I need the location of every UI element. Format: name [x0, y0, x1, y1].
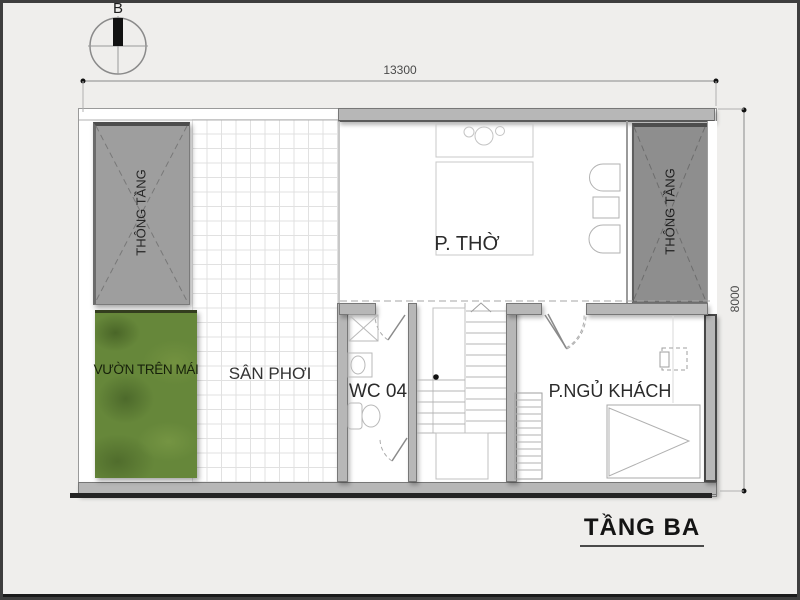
wall-wc-top [339, 303, 376, 315]
bottom-wall-shadow [70, 493, 712, 498]
wall-stair-right [506, 303, 517, 482]
sheet-title: TẦNG BA [557, 514, 727, 547]
north-label: B [108, 0, 128, 17]
wall-bedroom-top-right [586, 303, 708, 315]
void-right-label: THÔNG TẦNG [663, 152, 678, 272]
floor-plan-sheet: B 13300 8000 THÔNG TẦNG THÔNG TẦNG VƯỜN … [0, 0, 800, 600]
top-wall [338, 108, 715, 122]
guest-bedroom-label: P.NGỦ KHÁCH [530, 381, 690, 402]
drying-yard-label: SÂN PHƠI [200, 364, 340, 384]
void-left-label: THÔNG TẦNG [134, 153, 149, 273]
roof-garden-label: VƯỜN TRÊN MÁI [92, 362, 200, 377]
sheet-title-text: TẦNG BA [580, 514, 704, 547]
wall-bedroom-top-left [506, 303, 542, 315]
wc-label: WC 04 [338, 381, 418, 403]
drying-yard-tiles [192, 119, 338, 482]
worship-room-label: P. THỜ [407, 233, 527, 256]
right-parapet [707, 121, 717, 314]
roof-garden-area [95, 310, 197, 478]
dim-width-label: 13300 [360, 63, 440, 77]
wall-bedroom-right [704, 314, 717, 482]
dim-height-label: 8000 [728, 269, 742, 329]
